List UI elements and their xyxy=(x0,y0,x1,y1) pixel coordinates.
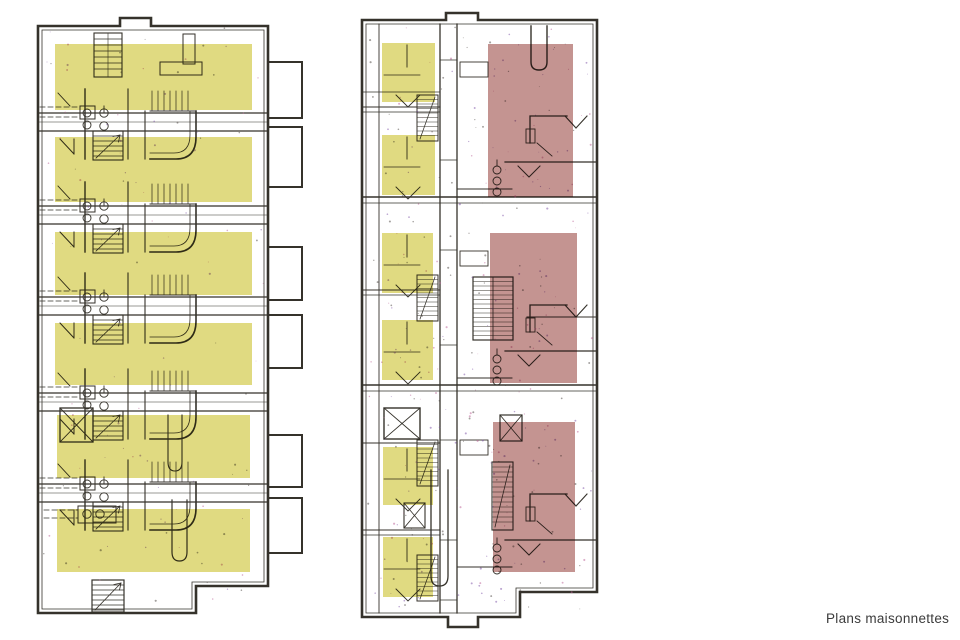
floor-plans-drawing xyxy=(0,0,960,640)
right-plan-red-highlights xyxy=(488,44,577,572)
plans-canvas xyxy=(0,0,960,640)
caption-plans-maisonnettes: Plans maisonnettes xyxy=(826,611,946,626)
right-plan-yellow-highlights xyxy=(382,43,435,597)
